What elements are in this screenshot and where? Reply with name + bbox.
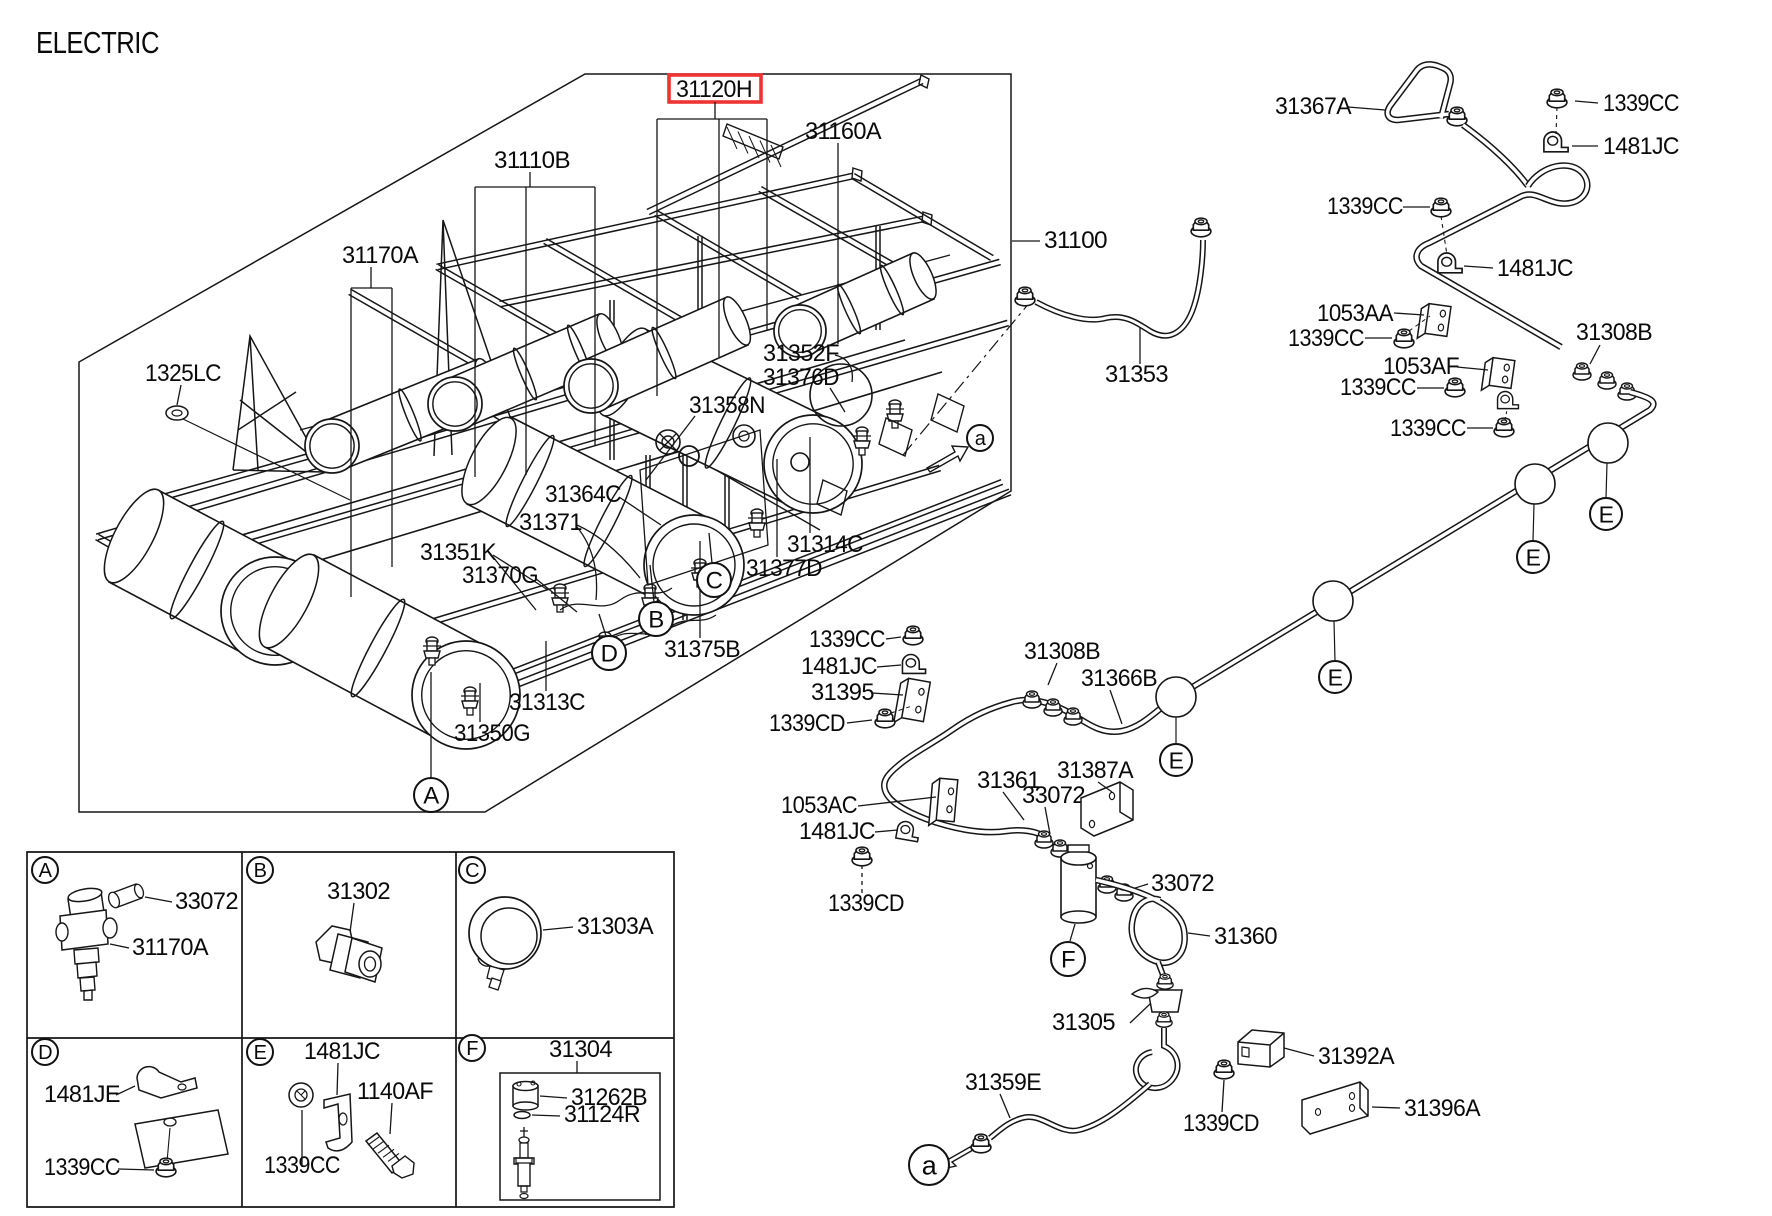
svg-text:31367A: 31367A <box>1275 93 1352 120</box>
svg-text:31314C: 31314C <box>787 531 863 558</box>
svg-text:33072: 33072 <box>1022 782 1085 809</box>
svg-text:1053AC: 1053AC <box>781 792 857 819</box>
svg-text:31110B: 31110B <box>494 147 570 174</box>
svg-text:1339CC: 1339CC <box>1390 415 1466 442</box>
svg-text:B: B <box>648 607 663 634</box>
svg-text:31396A: 31396A <box>1404 1095 1481 1122</box>
svg-text:1339CD: 1339CD <box>1183 1110 1259 1137</box>
svg-text:31170A: 31170A <box>132 934 209 961</box>
svg-text:1339CD: 1339CD <box>828 890 904 917</box>
svg-text:31370G: 31370G <box>462 562 538 589</box>
svg-text:A: A <box>423 783 439 810</box>
svg-text:31364C: 31364C <box>545 481 621 508</box>
svg-text:31100: 31100 <box>1044 227 1107 254</box>
svg-text:31160A: 31160A <box>805 118 882 145</box>
svg-text:31387A: 31387A <box>1057 757 1134 784</box>
svg-text:1481JE: 1481JE <box>44 1081 120 1108</box>
svg-text:F: F <box>1061 947 1075 974</box>
svg-text:E: E <box>1169 747 1184 773</box>
svg-text:ELECTRIC: ELECTRIC <box>36 25 159 60</box>
svg-text:31377D: 31377D <box>746 555 822 582</box>
svg-text:1339CC: 1339CC <box>1288 325 1364 352</box>
svg-text:E: E <box>254 1042 267 1064</box>
svg-text:33072: 33072 <box>1151 870 1214 897</box>
svg-text:31375B: 31375B <box>664 636 740 663</box>
svg-text:31303A: 31303A <box>577 913 654 940</box>
svg-text:1481JC: 1481JC <box>799 818 875 845</box>
svg-text:D: D <box>38 1042 52 1064</box>
svg-text:33072: 33072 <box>175 888 238 915</box>
svg-text:31358N: 31358N <box>689 392 765 419</box>
svg-text:31308B: 31308B <box>1024 638 1100 665</box>
svg-text:1339CC: 1339CC <box>44 1154 120 1181</box>
svg-text:31120H: 31120H <box>676 76 752 103</box>
svg-text:1325LC: 1325LC <box>145 360 221 387</box>
svg-text:31366B: 31366B <box>1081 665 1157 692</box>
svg-text:E: E <box>1526 544 1541 570</box>
svg-text:31313C: 31313C <box>509 689 585 716</box>
svg-text:a: a <box>922 1151 938 1181</box>
svg-text:31392A: 31392A <box>1318 1043 1395 1070</box>
svg-text:31353: 31353 <box>1105 361 1168 388</box>
svg-text:1339CC: 1339CC <box>1340 374 1416 401</box>
svg-text:D: D <box>601 641 618 668</box>
svg-text:1339CD: 1339CD <box>769 710 845 737</box>
svg-text:31124R: 31124R <box>564 1101 640 1128</box>
svg-text:31305: 31305 <box>1052 1009 1115 1036</box>
svg-text:1339CC: 1339CC <box>1327 193 1403 220</box>
svg-text:A: A <box>39 860 53 882</box>
svg-text:31170A: 31170A <box>342 242 419 269</box>
svg-text:1481JC: 1481JC <box>1603 133 1679 160</box>
svg-text:E: E <box>1599 501 1614 527</box>
svg-text:31302: 31302 <box>327 878 390 905</box>
svg-text:1140AF: 1140AF <box>357 1078 433 1105</box>
svg-text:B: B <box>254 860 267 882</box>
svg-text:31304: 31304 <box>549 1036 612 1063</box>
svg-text:1339CC: 1339CC <box>809 626 885 653</box>
svg-text:1481JC: 1481JC <box>1497 255 1573 282</box>
svg-text:31352F: 31352F <box>763 340 839 367</box>
svg-text:F: F <box>466 1038 478 1060</box>
svg-text:31359E: 31359E <box>965 1069 1041 1096</box>
svg-text:E: E <box>1328 664 1343 690</box>
svg-text:1481JC: 1481JC <box>801 653 877 680</box>
svg-text:1481JC: 1481JC <box>304 1038 380 1065</box>
svg-text:31371: 31371 <box>519 509 582 536</box>
svg-text:C: C <box>706 568 723 595</box>
svg-text:31360: 31360 <box>1214 923 1277 950</box>
svg-text:1053AA: 1053AA <box>1317 300 1394 327</box>
svg-text:31350G: 31350G <box>454 720 530 747</box>
svg-text:31395: 31395 <box>811 679 874 706</box>
svg-text:31376D: 31376D <box>763 364 839 391</box>
svg-text:1339CC: 1339CC <box>1603 90 1679 117</box>
svg-text:a: a <box>975 428 987 450</box>
svg-text:31308B: 31308B <box>1576 319 1652 346</box>
svg-text:C: C <box>465 860 479 882</box>
